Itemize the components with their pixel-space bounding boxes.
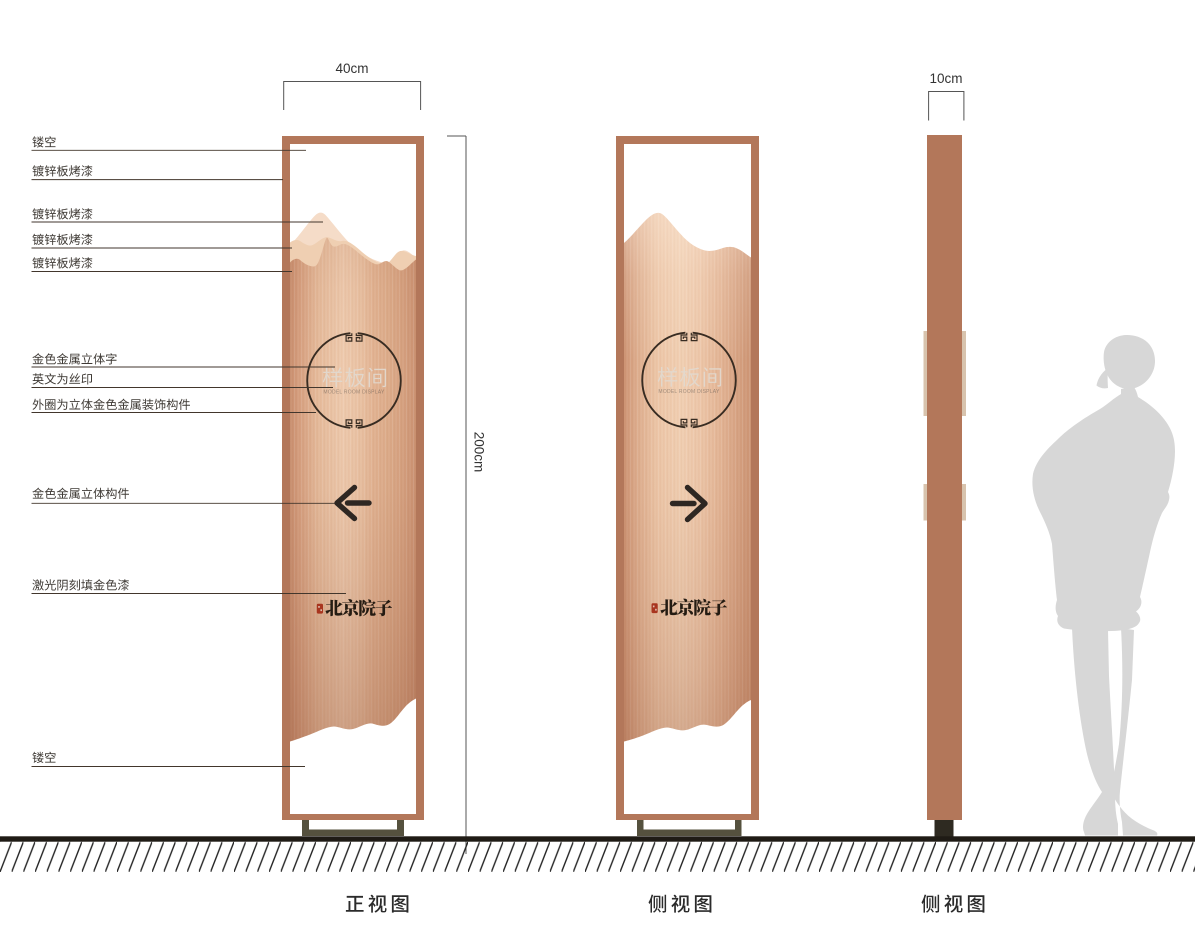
svg-text:40cm: 40cm [335,61,368,76]
svg-text:200cm: 200cm [472,432,487,473]
svg-text:10cm: 10cm [929,71,962,86]
svg-text:MODEL ROOM DISPLAY: MODEL ROOM DISPLAY [658,389,720,395]
svg-text:MODEL ROOM DISPLAY: MODEL ROOM DISPLAY [323,390,385,396]
